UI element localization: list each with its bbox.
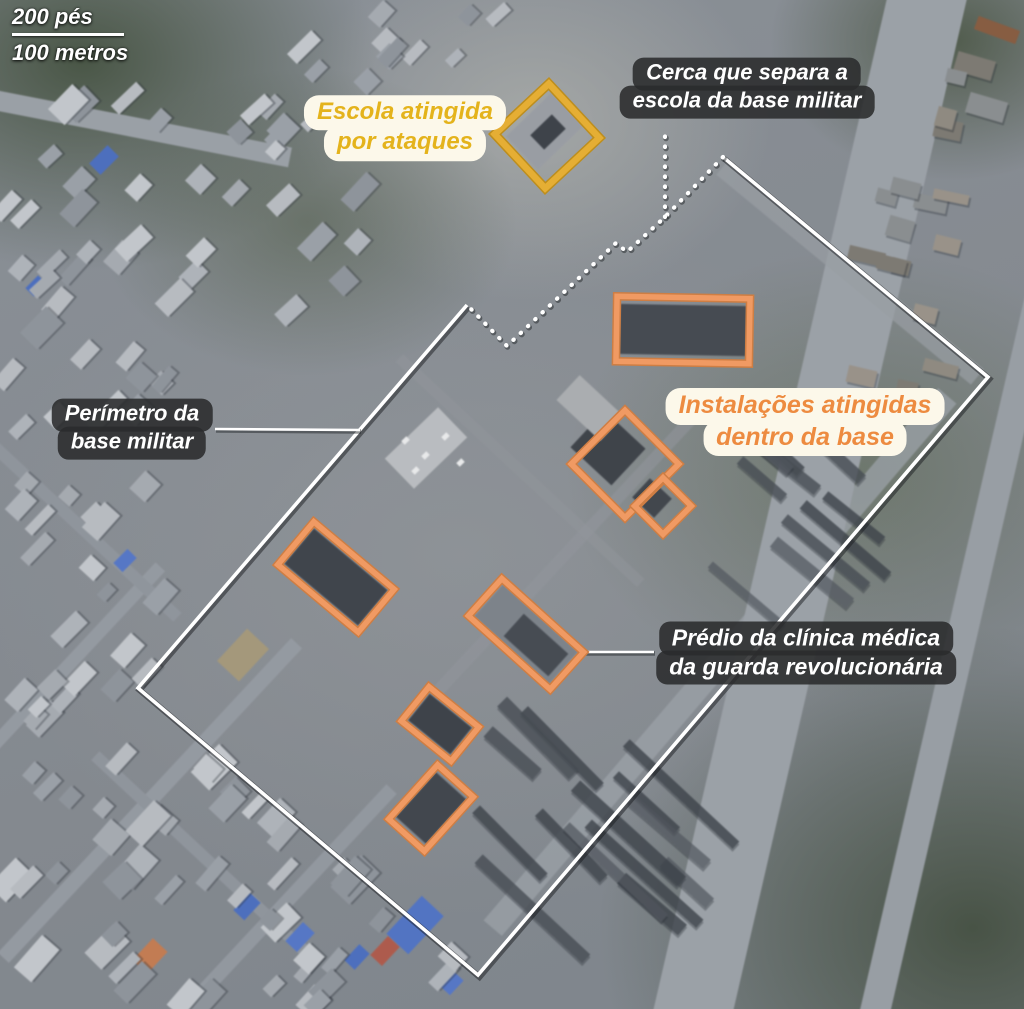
- fence-dotted-line: [470, 157, 723, 346]
- map-scale-bar: 200 pés 100 metros: [12, 4, 128, 66]
- school-hit-label: Escola atingida por ataques: [304, 95, 506, 161]
- annotated-satellite-map: 200 pés 100 metros Escola atingida por a…: [0, 0, 1024, 1009]
- scale-meters-label: 100 metros: [12, 40, 128, 66]
- facility-strike-marker: [571, 410, 678, 517]
- perimeter-line: [138, 157, 988, 975]
- clinic-building-label: Prédio da clínica médica da guarda revol…: [656, 621, 956, 684]
- callout-line: [215, 429, 360, 430]
- facility-strike-marker: [616, 296, 750, 363]
- facility-strike-marker: [635, 478, 692, 535]
- map-annotations-layer: [0, 0, 1024, 1009]
- perimeter-line-shadow: [140, 159, 990, 977]
- fence-separator-label: Cerca que separa a escola da base milita…: [620, 58, 875, 119]
- fence-dotted-line-shadow: [471, 159, 724, 348]
- school-strike-marker: [495, 84, 600, 189]
- facilities-hit-label: Instalações atingidas dentro da base: [666, 388, 945, 456]
- base-perimeter-label: Perímetro da base militar: [52, 399, 213, 460]
- scale-bar-line: [12, 33, 124, 36]
- facility-strike-marker-edge: [635, 478, 692, 535]
- facility-strike-marker-edge: [616, 296, 750, 363]
- facility-strike-marker: [401, 687, 478, 761]
- school-strike-marker-edge: [495, 84, 600, 189]
- scale-feet-label: 200 pés: [12, 4, 128, 30]
- facility-strike-marker-edge: [571, 410, 678, 517]
